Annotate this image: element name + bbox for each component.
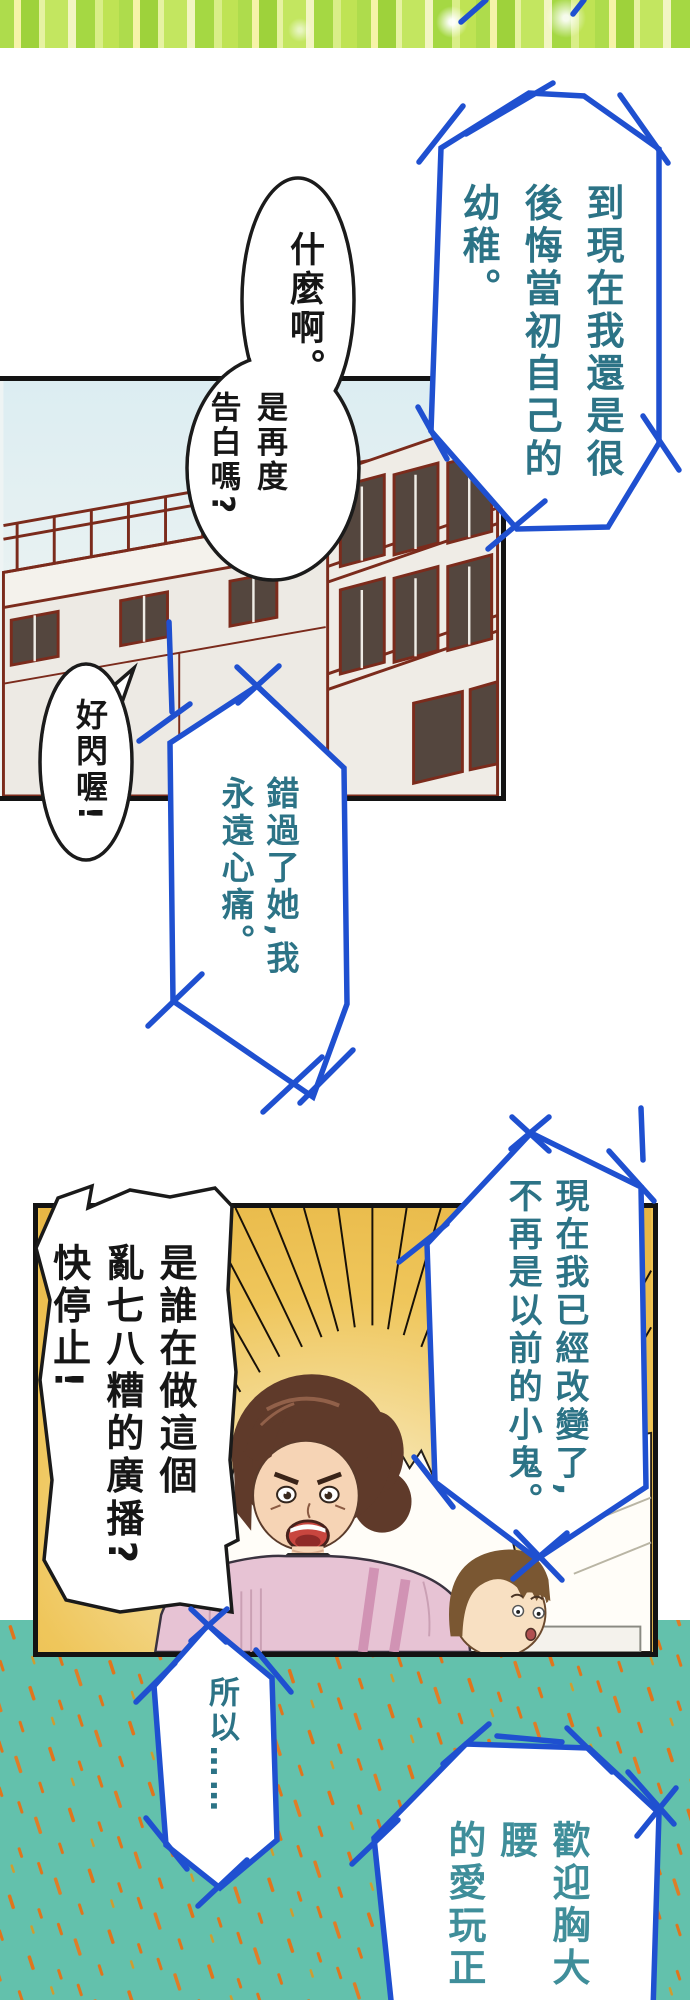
speech-changed: 現在我已經改變了, 不再是以前的小鬼。 [496,1178,592,1530]
speech-so: 所以…… [198,1676,236,1856]
speech-shine: 好閃喔! [68,698,106,853]
speech-welcome: 歡迎胸大腰 的愛玩正妹 療心痛喔— [436,1820,594,2000]
speech-who: 是誰在做這個 亂七八糟的廣播? 快停止! [41,1243,201,1605]
manga-page: 到現在我還是很 後悔當初自己的 幼稚。 什麼啊。 是再度 告白嗎? 好閃喔! 錯… [0,0,690,2000]
speech-confess: 是再度 告白嗎? [196,391,292,556]
speech-missed: 錯過了她,我 永遠心痛。 [210,776,302,1016]
speech-what: 什麼啊。 [281,231,321,401]
speech-regret: 到現在我還是很 後悔當初自己的 幼稚。 [442,183,632,535]
